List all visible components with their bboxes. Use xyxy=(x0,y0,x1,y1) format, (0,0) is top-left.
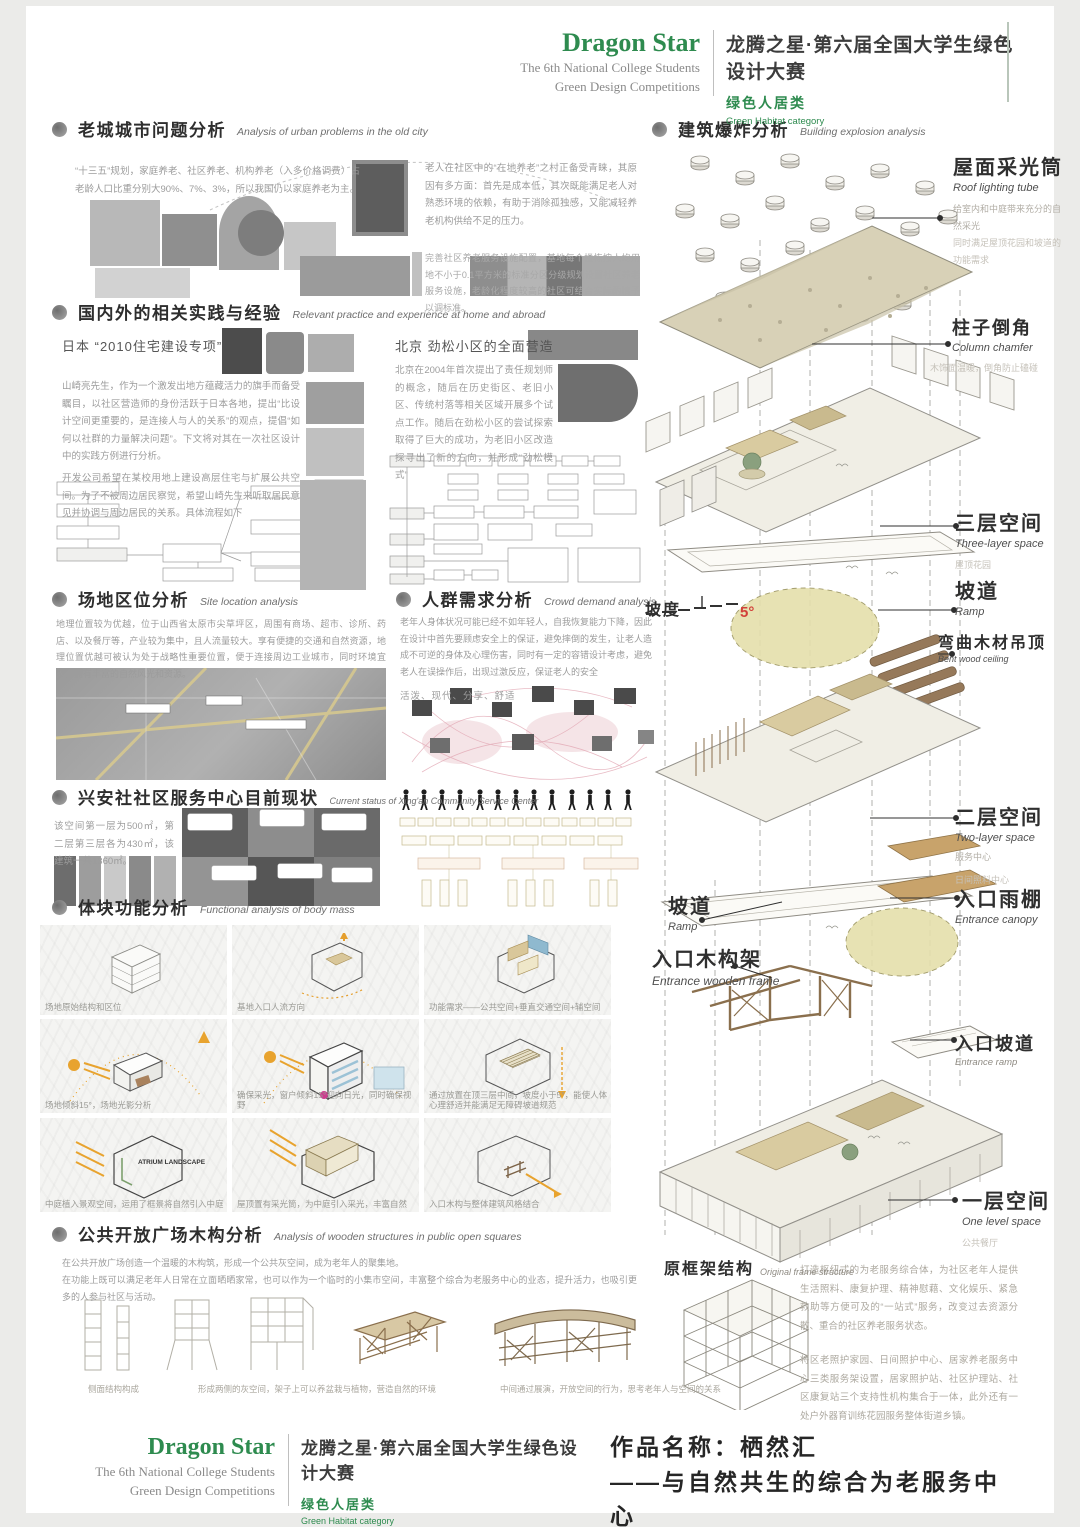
crowd-keywords: 活泼、现代、分享、舒适 xyxy=(400,688,516,702)
section-bullet xyxy=(52,122,67,137)
section-title-cn: 场地区位分析 xyxy=(78,592,189,609)
section-title-en: Relevant practice and experience at home… xyxy=(293,309,546,321)
section-title-en: Analysis of wooden structures in public … xyxy=(274,1231,521,1243)
mass-caption: 基地入口人流方向 xyxy=(237,1002,417,1013)
header: Dragon Star The 6th National College Stu… xyxy=(470,22,1010,102)
section-title-en: Analysis of urban problems in the old ci… xyxy=(237,126,428,138)
brand-subtitle-2: Green Design Competitions xyxy=(470,77,700,97)
beijing-photo-2 xyxy=(558,364,638,422)
label-ramp-right: 坡道 Ramp xyxy=(955,580,999,621)
footer-brand-logo: Dragon Star xyxy=(60,1434,275,1462)
label-entrance-canopy: 入口雨棚 Entrance canopy xyxy=(955,888,1043,929)
category-en: Green Habitat category xyxy=(726,116,1016,127)
section-title-cn: 兴安社社区服务中心目前现状 xyxy=(78,790,319,807)
section-crowd-header: 人群需求分析 Crowd demand analysis xyxy=(396,592,656,609)
label-original-frame: 原框架结构 Original frame structure xyxy=(664,1260,854,1279)
beijing-subtitle: 北京 劲松小区的全面营造 xyxy=(395,336,554,355)
crowd-paragraph: 老年人身体状况可能已经不如年轻人，自我恢复能力下降，因此在设计中首先要顾虑安全上… xyxy=(400,614,652,681)
plaza-caption-2: 形成两侧的灰空间，架子上可以养盆栽与植物，营造自然的环境 xyxy=(198,1382,488,1398)
slope-label: 坡度 xyxy=(645,596,681,620)
plaza-paragraph-1: 在公共开放广场创造一个温暖的木构筑，形成一个公共灰空间，成为老年人的聚集地。 xyxy=(62,1255,622,1272)
plaza-paragraph-2: 在功能上既可以满足老年人日常在立面晒晒家常，也可以作为一个临时的小集市空间，丰富… xyxy=(62,1272,637,1305)
work-name-line2: ——与自然共生的综合为老服务中心 xyxy=(610,1465,1020,1527)
label-entrance-wooden-frame: 入口木构架 Entrance wooden frame xyxy=(652,948,779,990)
poster: Dragon Star The 6th National College Stu… xyxy=(0,0,1080,1527)
section-bullet xyxy=(52,790,67,805)
mass-caption: 确保采光，窗户倾斜15°迎向日光，同时确保视野 xyxy=(237,1090,417,1111)
footer-category-cn: 绿色人居类 xyxy=(301,1494,581,1513)
japan-paragraph-2: 开发公司希望在某校用地上建设高层住宅与扩展公共空间。为了不被周边居民察觉，希望山… xyxy=(62,470,300,523)
site-paragraph: 地理位置较为优越，位于山西省太原市尖草坪区，周围有商场、超市、诊所、药店、以及餐… xyxy=(56,616,386,683)
mass-cell-9: 入口木构与整体建筑风格结合 xyxy=(424,1118,611,1212)
explosion-paragraph-2: 将区老照护家园、日间照护中心、居家养老服务中心三类服务架设置，居家照护站、社区护… xyxy=(800,1352,1018,1426)
mass-cell-7: ATRIUM LANDSCAPE 中庭植入景观空间，运用了框景将自然引入中庭 xyxy=(40,1118,227,1212)
section-bullet xyxy=(52,305,67,320)
label-ramp-left: 坡道 Ramp xyxy=(668,895,712,936)
section-practice-header: 国内外的相关实践与经验 Relevant practice and experi… xyxy=(52,305,545,322)
mass-cell-6: 通过放置在顶三层中间，坡度小于5°，能使人体心理舒适并能满足无障碍坡道规范 xyxy=(424,1019,611,1113)
section-title-cn: 国内外的相关实践与经验 xyxy=(78,305,282,322)
mass-caption: 场地倾斜15°，场地光影分析 xyxy=(45,1100,225,1111)
beijing-paragraph: 北京在2004年首次提出了责任规划师的概念，随后在历史街区、老旧小区、传统村落等… xyxy=(395,362,553,485)
section-title-en: Building explosion analysis xyxy=(800,126,926,138)
label-entrance-ramp: 入口坡道 Entrance ramp xyxy=(955,1034,1035,1070)
section-status-header: 兴安社社区服务中心目前现状 Current status of Xing'an … xyxy=(52,790,538,807)
top-margin xyxy=(0,0,1080,6)
site-map xyxy=(56,668,386,780)
section-urban-header: 老城城市问题分析 Analysis of urban problems in t… xyxy=(52,122,428,139)
footer-competition-title: 龙腾之星·第六届全国大学生绿色设计大赛 xyxy=(301,1434,581,1484)
plaza-caption-1: 侧面结构构成 xyxy=(88,1382,198,1398)
work-name-line1: 作品名称：栖然汇 xyxy=(610,1430,1020,1465)
footer: Dragon Star The 6th National College Stu… xyxy=(60,1428,1020,1518)
mass-caption: 中庭植入景观空间，运用了框景将自然引入中庭 xyxy=(45,1199,225,1210)
section-title-en: Current status of Xing'an Community Serv… xyxy=(330,796,539,806)
left-margin xyxy=(0,0,26,1527)
atrium-label: ATRIUM LANDSCAPE xyxy=(138,1158,208,1167)
label-column-chamfer: 柱子倒角 Column chamfer 木饰面温暖，倒角防止磕碰 xyxy=(952,318,1077,377)
framed-portrait xyxy=(352,160,408,236)
mass-caption: 入口木构与整体建筑风格结合 xyxy=(429,1199,609,1210)
urban-paragraph-right: 老人在社区中的“在地养老”之村正备受青睐，其原因有多方面：首先是成本低，其次既能… xyxy=(425,160,637,230)
mass-cell-5: 确保采光，窗户倾斜15°迎向日光，同时确保视野 xyxy=(232,1019,419,1113)
japan-book-photo xyxy=(222,328,262,374)
mass-cell-4: 场地倾斜15°，场地光影分析 xyxy=(40,1019,227,1113)
competition-title: 龙腾之星·第六届全国大学生绿色设计大赛 xyxy=(726,30,1016,84)
section-plaza-header: 公共开放广场木构分析 Analysis of wooden structures… xyxy=(52,1227,521,1244)
japan-subtitle: 日本 “2010住宅建设专项” xyxy=(62,336,222,355)
section-mass-header: 体块功能分析 Functional analysis of body mass xyxy=(52,900,355,917)
label-roof-tube: 屋面采光筒 Roof lighting tube 给室内和中庭带来充分的自然采光… xyxy=(953,156,1071,269)
footer-brand-subtitle-2: Green Design Competitions xyxy=(60,1481,275,1501)
section-site-header: 场地区位分析 Site location analysis xyxy=(52,592,298,609)
section-title-en: Site location analysis xyxy=(200,596,298,608)
section-bullet xyxy=(52,592,67,607)
mass-caption: 场地原始结构和区位 xyxy=(45,1002,225,1013)
label-two-layer: 二层空间 Two-layer space 服务中心 日间照料中心 xyxy=(955,806,1043,889)
urban-paragraph-left: “十三五”规划，家庭养老、社区养老、机构养老（入多价格调费）占老龄人口比重分别大… xyxy=(75,163,360,198)
slope-value: 5° xyxy=(740,604,754,621)
header-divider xyxy=(713,30,714,96)
footer-brand-subtitle-1: The 6th National College Students xyxy=(60,1462,275,1482)
section-bullet xyxy=(52,1227,67,1242)
label-one-level: 一层空间 One level space 公共餐厅 xyxy=(962,1190,1050,1252)
section-title-en: Crowd demand analysis xyxy=(544,596,656,608)
section-title-en: Functional analysis of body mass xyxy=(200,904,355,916)
section-bullet xyxy=(52,900,67,915)
japan-photo-2 xyxy=(306,382,364,424)
japan-site-photo xyxy=(308,334,354,372)
mass-cell-3: 功能需求——公共空间+垂直交通空间+辅空间 xyxy=(424,925,611,1015)
section-title-cn: 老城城市问题分析 xyxy=(78,122,226,139)
mass-caption: 功能需求——公共空间+垂直交通空间+辅空间 xyxy=(429,1002,609,1013)
mass-caption: 通过放置在顶三层中间，坡度小于5°，能使人体心理舒适并能满足无障碍坡道规范 xyxy=(429,1090,609,1111)
japan-photo-4 xyxy=(300,480,366,590)
section-bullet xyxy=(652,122,667,137)
plaza-caption-3: 中间通过展演，开放空间的行为，思考老年人与空间的关系 xyxy=(500,1382,800,1398)
section-title-cn: 人群需求分析 xyxy=(422,592,533,609)
mass-cell-8: 屋顶置有采光筒，为中庭引入采光，丰富自然 xyxy=(232,1118,419,1212)
footer-category-en: Green Habitat category xyxy=(301,1516,581,1526)
brand-subtitle-1: The 6th National College Students xyxy=(470,58,700,78)
section-bullet xyxy=(396,592,411,607)
category-cn: 绿色人居类 xyxy=(726,93,1016,113)
interior-photos xyxy=(182,808,380,906)
brand-logo: Dragon Star xyxy=(470,28,700,58)
label-bent-wood: 弯曲木材吊顶 Bent wood ceiling xyxy=(938,634,1046,667)
label-three-layer: 三层空间 Three-layer space 屋顶花园 xyxy=(955,512,1044,574)
section-title-cn: 公共开放广场木构分析 xyxy=(78,1227,263,1244)
plaza-drawings xyxy=(55,1296,655,1380)
header-accent-line xyxy=(1007,22,1009,102)
section-title-cn: 体块功能分析 xyxy=(78,900,189,917)
footer-divider xyxy=(288,1434,289,1506)
mass-cell-1: 场地原始结构和区位 xyxy=(40,925,227,1015)
japan-photo-3 xyxy=(306,428,364,476)
mass-caption: 屋顶置有采光筒，为中庭引入采光，丰富自然 xyxy=(237,1199,417,1210)
status-paragraph: 该空间第一层为500㎡，第二层第三层各为430㎡，该建筑一共1360㎡。 xyxy=(54,818,174,871)
japan-portrait-photo xyxy=(266,332,304,374)
mass-cell-2: 基地入口人流方向 xyxy=(232,925,419,1015)
japan-paragraph: 山崎亮先生，作为一个激发出地方蕴藏活力的旗手而备受瞩目，以社区营造师的身份活跃于… xyxy=(62,378,300,466)
